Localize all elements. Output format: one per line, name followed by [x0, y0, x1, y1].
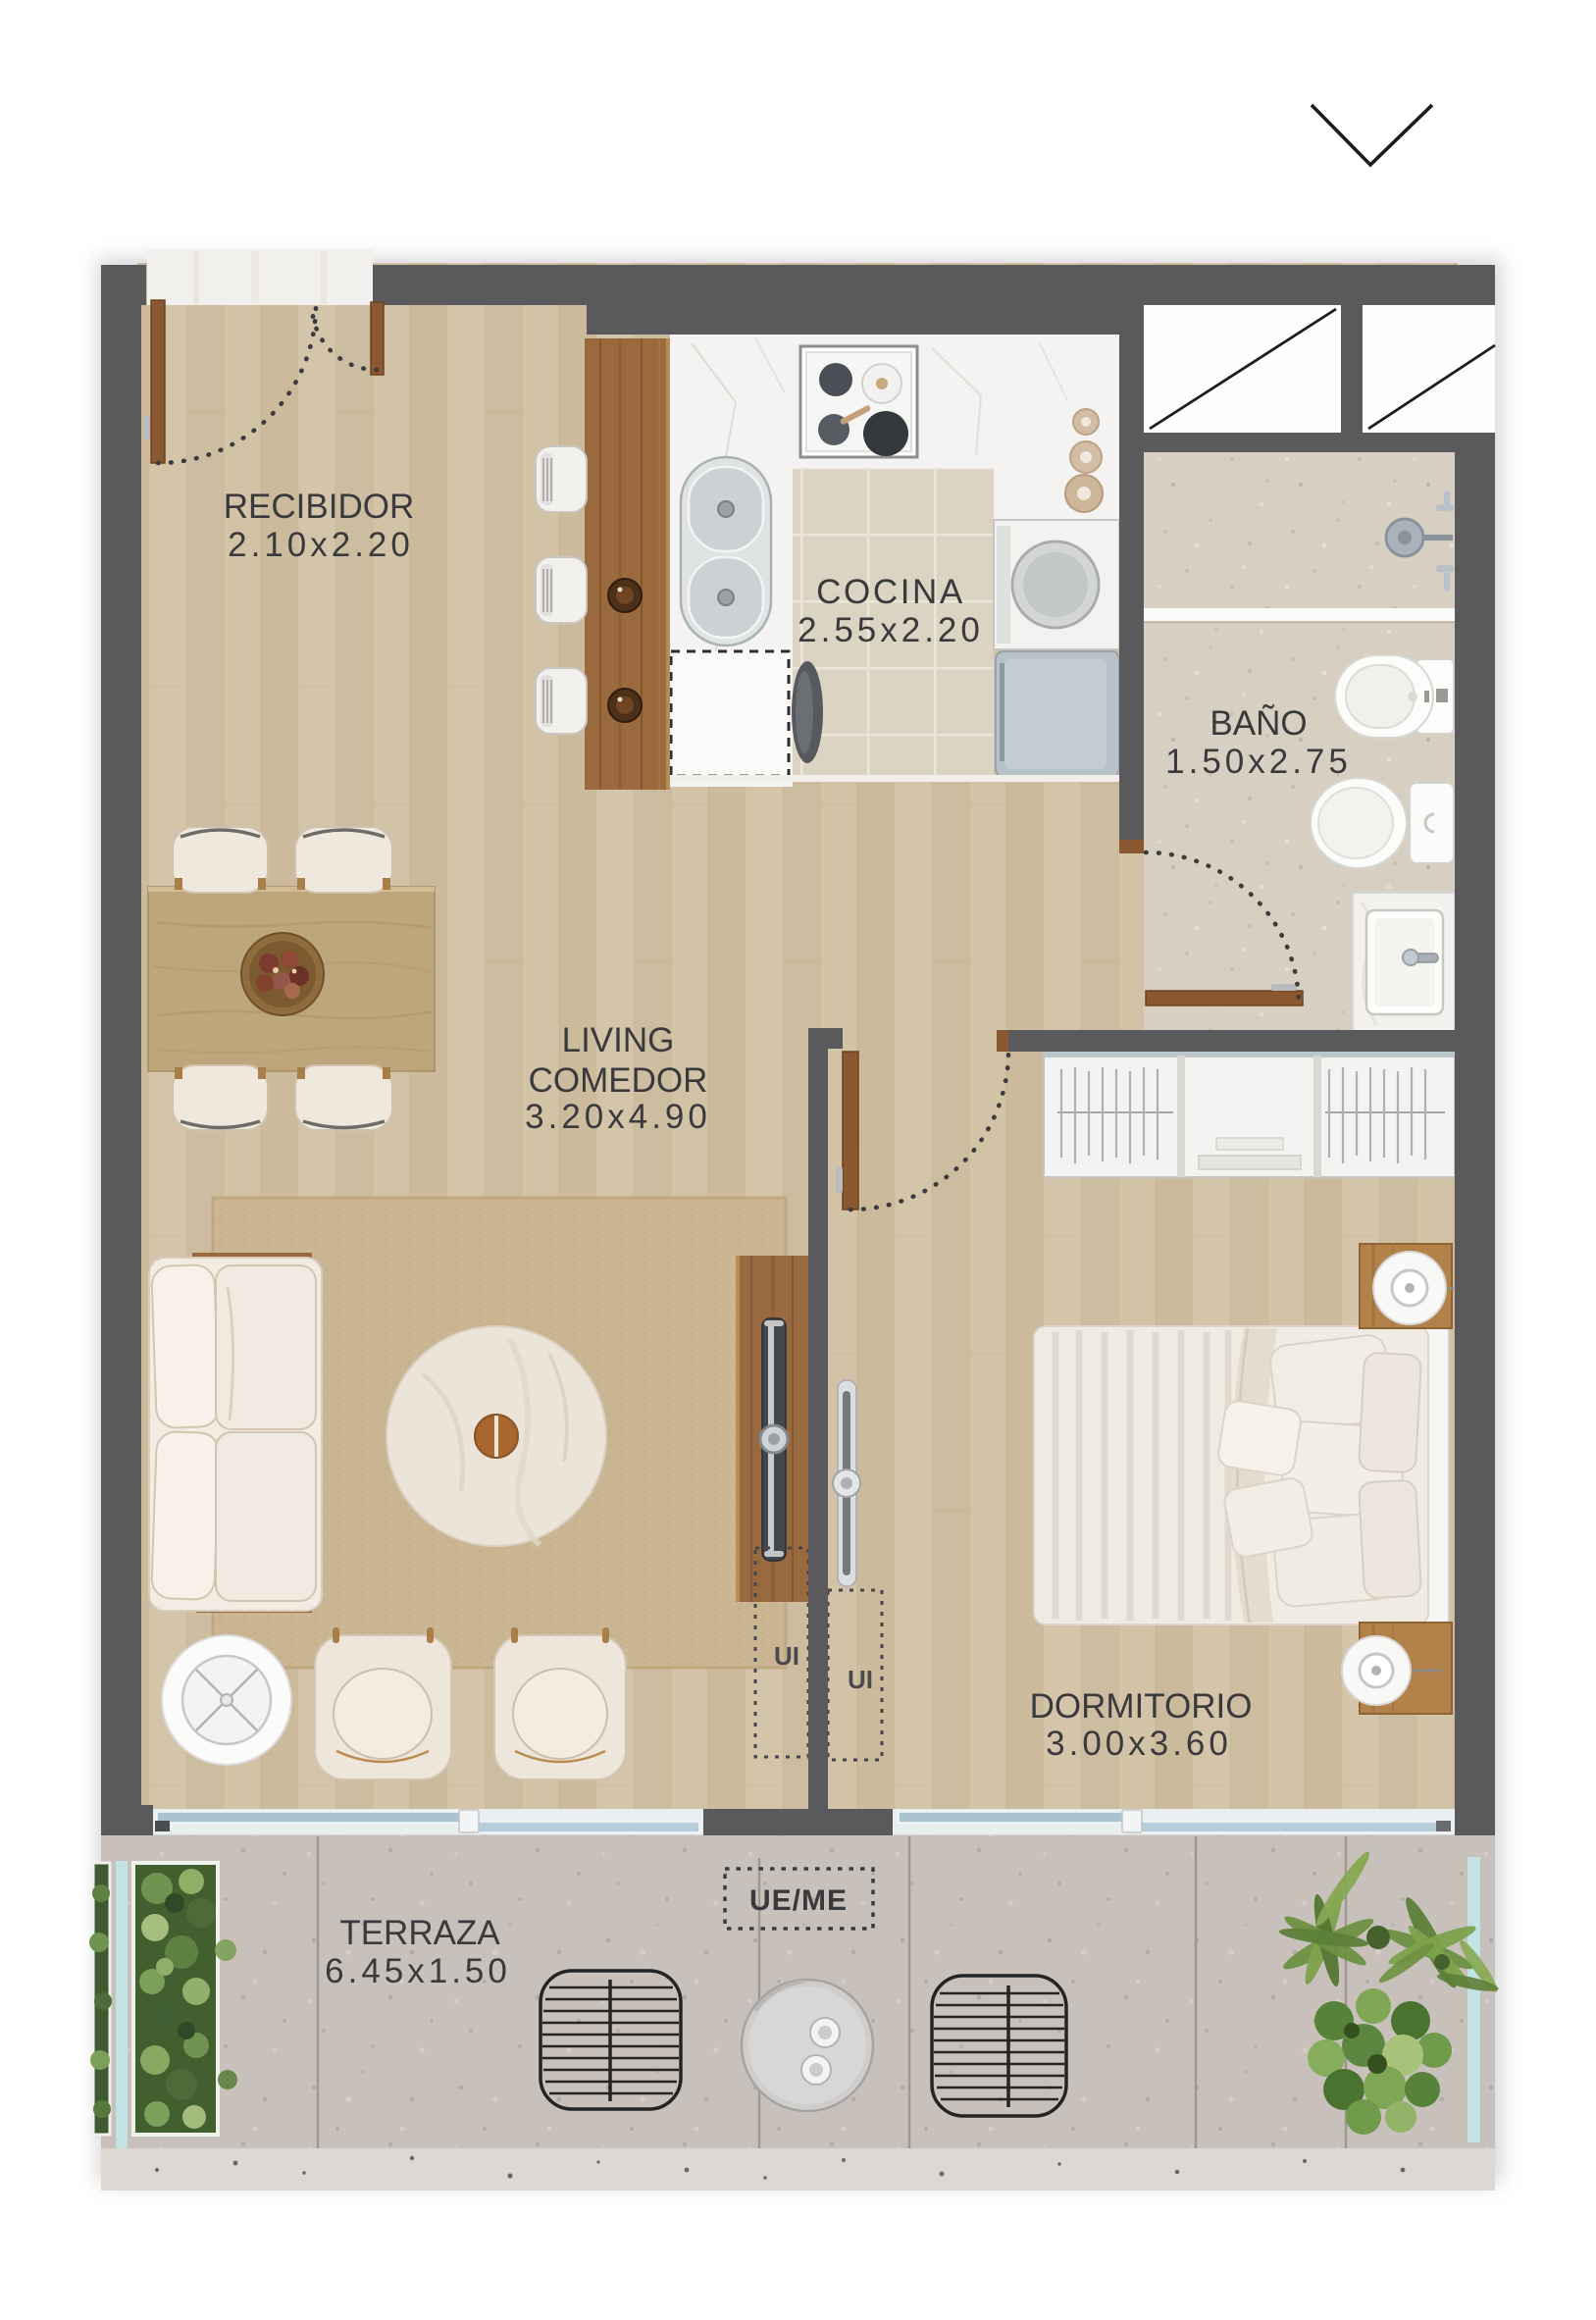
svg-text:RECIBIDOR: RECIBIDOR — [224, 488, 414, 526]
svg-text:BAÑO: BAÑO — [1210, 704, 1307, 743]
svg-text:3.20x4.90: 3.20x4.90 — [525, 1098, 711, 1136]
svg-text:UI: UI — [774, 1641, 799, 1671]
svg-text:UI: UI — [848, 1665, 873, 1694]
svg-text:6.45x1.50: 6.45x1.50 — [325, 1952, 511, 1990]
svg-text:2.55x2.20: 2.55x2.20 — [798, 611, 984, 649]
svg-text:TERRAZA: TERRAZA — [339, 1914, 500, 1952]
svg-text:COMEDOR: COMEDOR — [529, 1061, 708, 1100]
svg-text:LIVING: LIVING — [562, 1021, 675, 1059]
svg-text:DORMITORIO: DORMITORIO — [1030, 1687, 1253, 1726]
svg-text:3.00x3.60: 3.00x3.60 — [1046, 1725, 1232, 1763]
svg-text:2.10x2.20: 2.10x2.20 — [228, 526, 414, 564]
svg-text:COCINA: COCINA — [816, 573, 965, 611]
svg-text:1.50x2.75: 1.50x2.75 — [1165, 743, 1352, 781]
svg-text:UE/ME: UE/ME — [749, 1884, 848, 1917]
